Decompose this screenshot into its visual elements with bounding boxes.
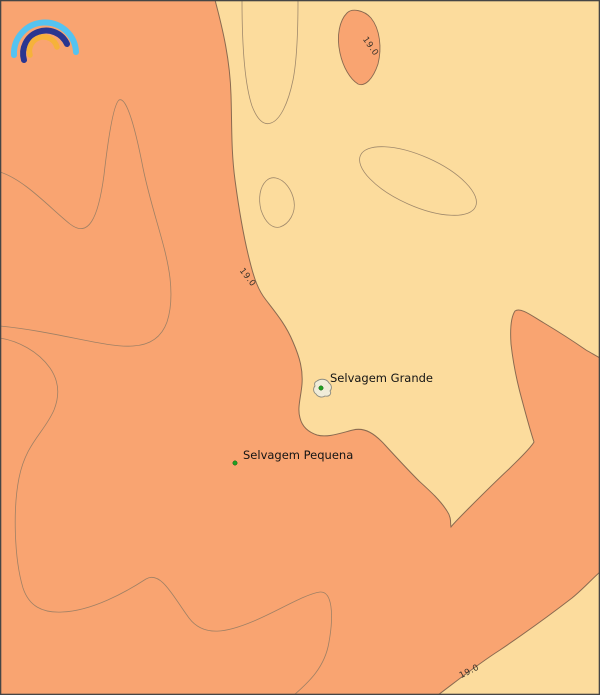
isotherm-weather-map: Selvagem Grande Selvagem Pequena 19.0 19…	[0, 0, 600, 695]
map-svg: Selvagem Grande Selvagem Pequena 19.0 19…	[0, 0, 600, 695]
selvagem-pequena-marker	[233, 461, 237, 465]
selvagem-pequena-label: Selvagem Pequena	[243, 448, 353, 462]
selvagem-grande-marker	[319, 386, 323, 390]
selvagem-grande-label: Selvagem Grande	[330, 371, 433, 385]
